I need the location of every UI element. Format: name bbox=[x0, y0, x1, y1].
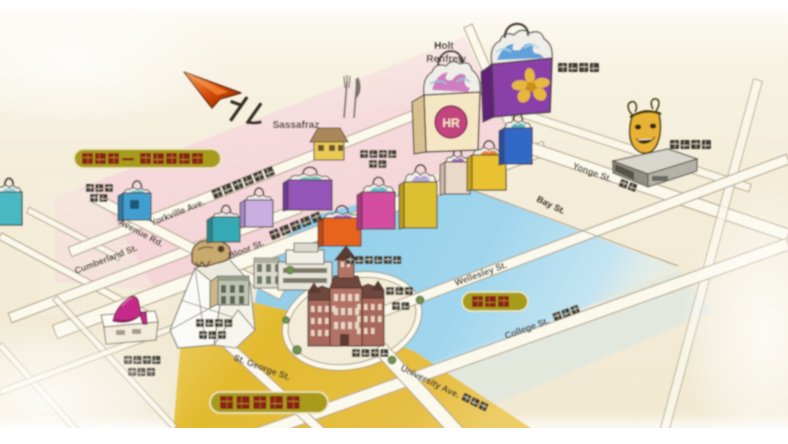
svg-text:HR: HR bbox=[442, 116, 460, 130]
svg-text:Renfrew: Renfrew bbox=[426, 54, 466, 65]
svg-text:Holt: Holt bbox=[434, 41, 454, 52]
svg-text:Sassafraz: Sassafraz bbox=[273, 120, 320, 131]
